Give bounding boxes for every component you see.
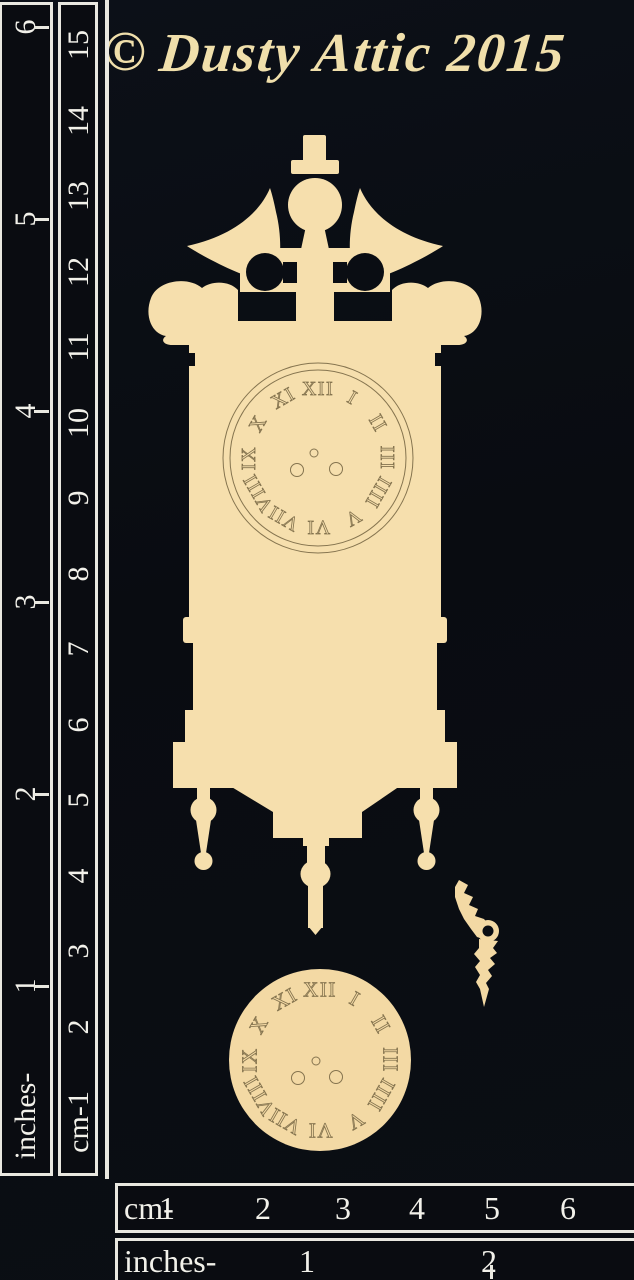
dial-numeral: IX [237,1047,261,1072]
capital-notch-left [187,353,195,366]
left-ruler-cm-number: 2 [64,1019,94,1034]
finial-bulb [288,178,342,232]
pediment-hole-right [346,253,384,291]
left-ruler-cm-number: 10 [64,408,94,438]
bottom-ruler-cm-number: 3 [335,1192,351,1224]
finial-knob [303,135,326,163]
dial-numeral: III [379,1047,403,1072]
left-ruler-cm-number: 8 [64,566,94,581]
pediment-slot-right [333,262,347,283]
left-ruler-cm-number: 15 [64,30,94,60]
bottom-ruler-cm-number: 4 [409,1192,425,1224]
left-ruler-inches-strip [0,2,53,1176]
ruler-tick [34,26,49,29]
ruler-tick [34,410,49,413]
bottom-ruler-inch-unit-label: inches- [124,1245,216,1277]
bottom-ruler-inch-number: 2 [481,1245,497,1277]
pediment-slot-left [283,262,297,283]
dial-numeral: XII [302,378,334,400]
bottom-bracket [174,762,456,838]
cornice [171,321,459,343]
left-ruler-cm-unit-label: cm-1 [64,1091,94,1153]
left-ruler-cm-number: 9 [64,491,94,506]
mid-ledge [185,710,445,744]
left-ruler-cm-number: 3 [64,944,94,959]
pendulum-rod [308,886,323,928]
clock-hand-spire [474,939,498,1007]
left-ruler-cm-number: 11 [64,333,94,362]
clock-hand-hole [483,926,494,937]
drop-finial-right-cone [419,820,434,853]
left-ruler-cm-number: 12 [64,257,94,287]
left-ruler-cm-number: 6 [64,717,94,732]
dial-numeral: XII [303,977,337,1001]
left-ruler-cm-number: 5 [64,793,94,808]
drop-finial-left-ball [191,797,217,823]
pendulum-bulge [301,860,331,888]
left-ruler-cm-strip [58,2,98,1176]
ruler-tick [34,218,49,221]
drop-finial-left-tip [195,852,213,870]
pediment-hole-left [246,253,284,291]
ruler-tick [34,985,49,988]
drop-finial-left-cone [196,820,211,853]
dial-numeral: III [376,446,398,470]
ruler-tick [34,793,49,796]
brand-header: © Dusty Attic 2015 [104,24,566,80]
left-ruler-inch-unit-label: inches- [11,1073,41,1160]
bottom-ruler-cm-number: 5 [484,1192,500,1224]
dial-numeral: IX [238,446,260,470]
clock-hand [455,880,499,1007]
ruler-tick [34,601,49,604]
ruler-tick [490,1265,493,1279]
bottom-ruler-inch-number: 1 [299,1245,315,1277]
pendulum-tip [308,926,323,935]
bottom-ruler-cm-number: 6 [560,1192,576,1224]
left-ruler-cm-number: 14 [64,106,94,136]
bottom-ruler-cm-number: 1 [159,1192,175,1224]
left-ruler-cm-number: 4 [64,868,94,883]
lower-panel [193,620,437,712]
dial-numeral: VI [306,516,330,538]
capital-notch-right [435,353,443,366]
dial-numeral: VI [307,1119,332,1143]
bottom-ruler-cm-strip [115,1183,634,1233]
bottom-ruler-cm-number: 2 [255,1192,271,1224]
brand-text: Dusty Attic 2015 [157,25,569,80]
drop-finial-right-tip [418,852,436,870]
copyright-icon: © [104,24,146,80]
finial-flange [291,160,339,174]
product-photo: XIIIIIIIIIIIIVVIVIIVIIIIXXXI XIIIIIIIIII… [0,0,634,1280]
photo-edge-line [105,0,109,1179]
left-ruler-cm-number: 7 [64,642,94,657]
drop-finial-right-ball [414,797,440,823]
left-ruler-cm-number: 13 [64,181,94,211]
